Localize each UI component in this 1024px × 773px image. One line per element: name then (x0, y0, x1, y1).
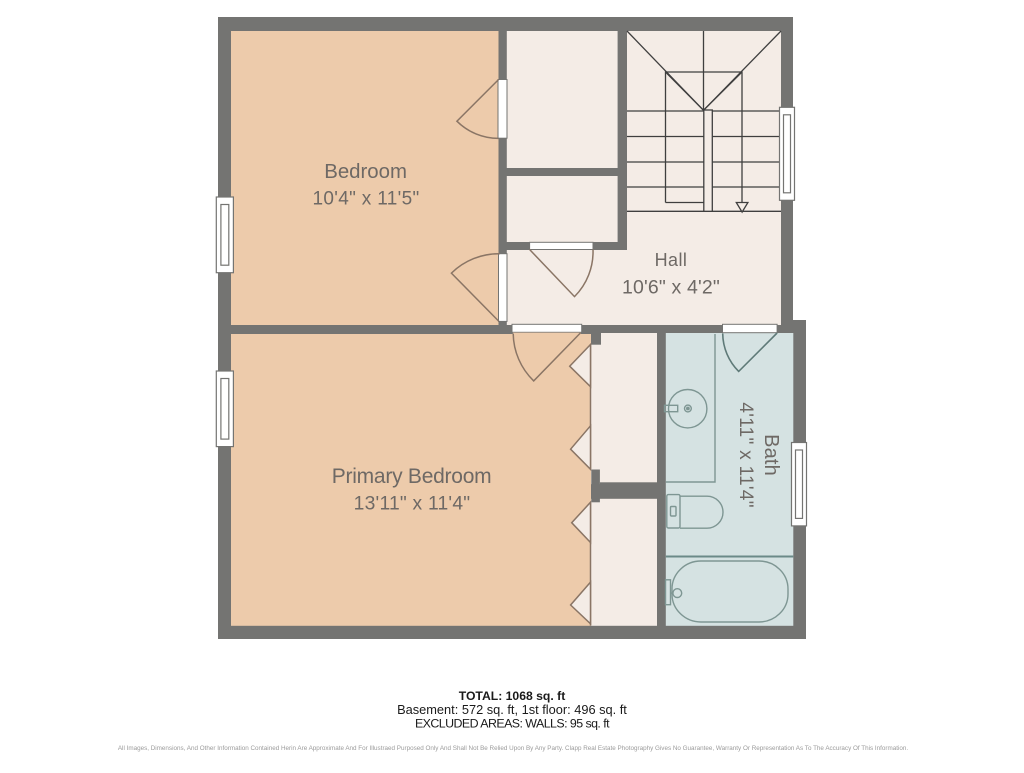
svg-text:Bath: Bath (760, 434, 782, 476)
svg-text:10'4" x 11'5": 10'4" x 11'5" (312, 189, 419, 210)
svg-text:4'11" x 11'4": 4'11" x 11'4" (735, 402, 756, 507)
svg-text:13'11" x 11'4": 13'11" x 11'4" (354, 493, 471, 514)
svg-text:Basement: 572 sq. ft, 1st floo: Basement: 572 sq. ft, 1st floor: 496 sq.… (397, 702, 627, 717)
svg-text:Bedroom: Bedroom (324, 161, 407, 183)
svg-text:EXCLUDED AREAS: WALLS: 95 sq.: EXCLUDED AREAS: WALLS: 95 sq. ft (415, 717, 610, 731)
svg-text:10'6" x 4'2": 10'6" x 4'2" (622, 277, 720, 299)
svg-text:Primary Bedroom: Primary Bedroom (332, 465, 492, 488)
svg-text:All Images, Dimensions, And Ot: All Images, Dimensions, And Other Inform… (118, 745, 909, 752)
svg-text:TOTAL: 1068 sq. ft: TOTAL: 1068 sq. ft (459, 689, 566, 703)
svg-text:Hall: Hall (655, 250, 688, 270)
